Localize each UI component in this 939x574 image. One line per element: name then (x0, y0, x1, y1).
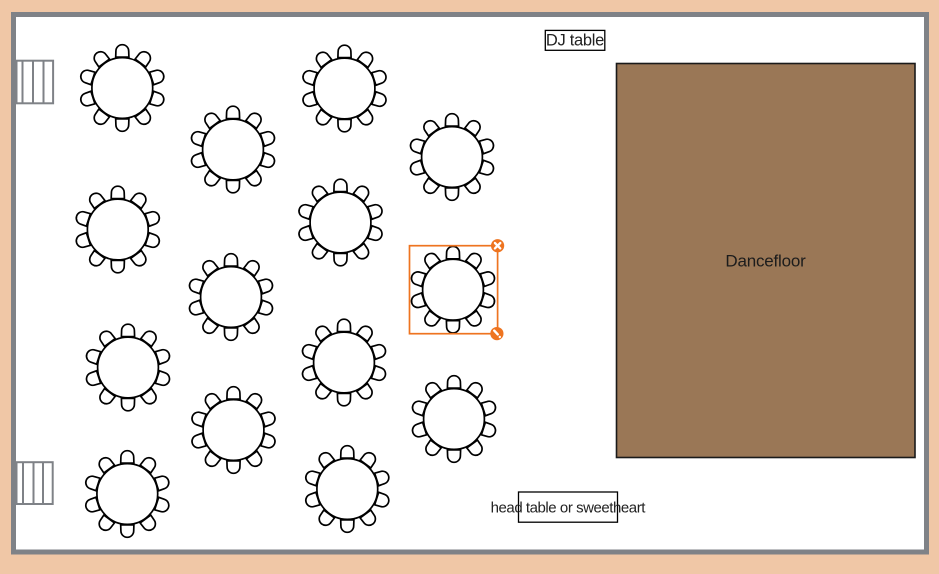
svg-text:head table or sweetheart: head table or sweetheart (491, 499, 647, 516)
svg-text:DJ table: DJ table (546, 32, 604, 50)
svg-text:Dancefloor: Dancefloor (725, 252, 806, 271)
